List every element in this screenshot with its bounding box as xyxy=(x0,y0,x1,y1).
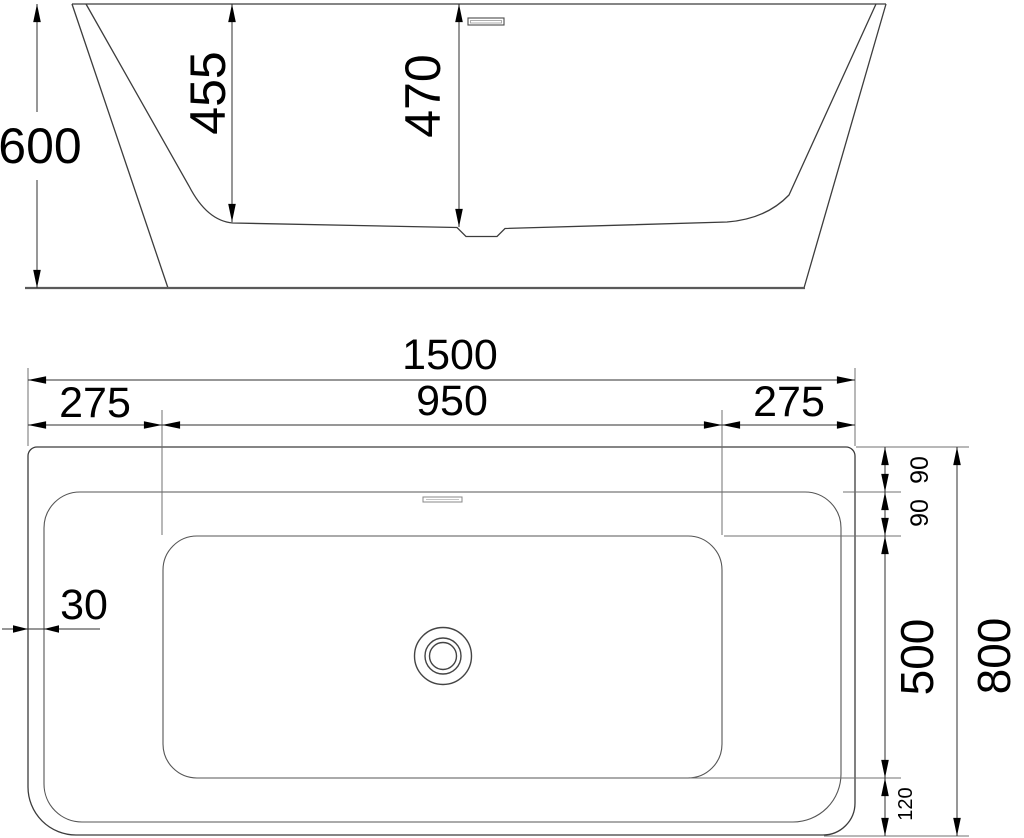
drain xyxy=(415,628,472,685)
dim-label-500: 500 xyxy=(891,619,943,696)
dim-label-600: 600 xyxy=(0,118,82,174)
dimension-total-height: 600 xyxy=(0,4,82,288)
tub-outer-wall-left xyxy=(72,4,168,288)
dim-label-275-left: 275 xyxy=(59,379,131,427)
drain-middle-circle xyxy=(425,638,461,674)
dim-label-1500: 1500 xyxy=(402,331,498,379)
dim-label-275-right: 275 xyxy=(753,378,825,426)
dim-label-455: 455 xyxy=(180,51,236,134)
dim-label-470: 470 xyxy=(395,54,451,137)
bathtub-dimension-drawing: 600 455 470 xyxy=(0,0,1024,838)
dimension-basin-depth: 455 xyxy=(180,4,236,222)
dim-label-120: 120 xyxy=(895,787,917,820)
dim-label-90-inner: 90 xyxy=(906,499,934,527)
dim-label-30: 30 xyxy=(60,581,108,629)
drain-outer-circle xyxy=(415,628,472,685)
dim-label-90-top: 90 xyxy=(906,456,934,484)
top-plan-view: 1500 275 950 275 30 90 90 500 120 xyxy=(2,331,1020,836)
dimension-wall-thickness: 30 xyxy=(2,581,108,633)
tub-outer-wall-right xyxy=(804,4,886,288)
dimension-overflow-height: 470 xyxy=(395,4,459,227)
dimension-length-chain: 275 950 275 xyxy=(28,377,855,427)
drain-inner-circle xyxy=(430,643,457,670)
dim-arrow-30-right xyxy=(44,625,59,633)
tub-basin-plan xyxy=(163,536,722,778)
side-elevation-view: 600 455 470 xyxy=(0,4,886,288)
overflow-mark-side xyxy=(468,18,504,25)
dimension-total-length: 1500 xyxy=(28,331,855,380)
dimension-total-width: 800 xyxy=(957,447,1020,836)
dim-label-950: 950 xyxy=(416,377,488,425)
tub-outer-rim-plan xyxy=(28,447,855,835)
dim-arrow-30-left xyxy=(13,625,28,633)
dim-label-800: 800 xyxy=(968,618,1020,695)
extension-lines xyxy=(28,368,969,836)
technical-drawing-canvas: 600 455 470 xyxy=(0,0,1024,838)
